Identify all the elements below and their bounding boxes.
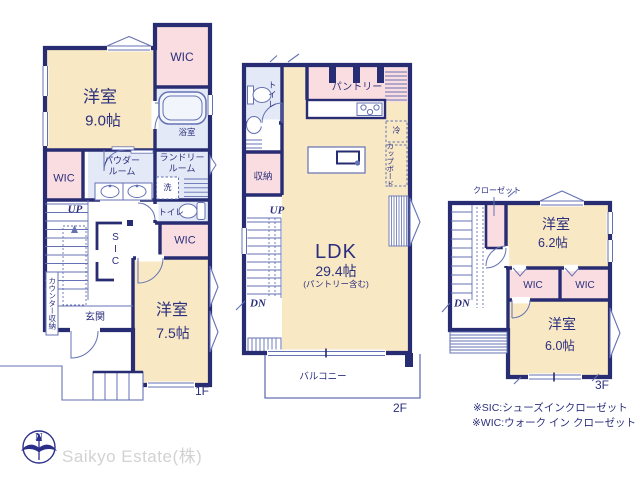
label-1f-washer: 洗 bbox=[164, 184, 172, 192]
bay-window bbox=[210, 311, 218, 352]
label-1f-room-south: 洋室 bbox=[156, 303, 188, 319]
bay-window bbox=[210, 266, 218, 307]
label-2f-toilet: トイレ bbox=[268, 81, 277, 110]
company-logo-text: Saikyo Estate(株) bbox=[62, 448, 202, 465]
room-3f-closet bbox=[486, 205, 506, 248]
bathtub bbox=[159, 92, 206, 124]
label-1f-floor: 1F bbox=[195, 385, 209, 397]
kitchen-island bbox=[308, 147, 365, 173]
label-1f-up: UP bbox=[68, 205, 83, 216]
label-3f-room-se-size: 6.0帖 bbox=[545, 340, 575, 353]
label-2f-ldk: LDK bbox=[315, 242, 357, 262]
label-1f-room-west-size: 9.0帖 bbox=[85, 114, 121, 129]
note-wic: ※WIC:ウォーク イン クローゼット bbox=[472, 418, 636, 429]
label-3f-room-se: 洋室 bbox=[548, 317, 576, 331]
room-1f-south-75 bbox=[133, 258, 210, 385]
label-1f-laundry-2: ルーム bbox=[169, 165, 196, 174]
label-1f-wic-north: WIC bbox=[170, 51, 193, 63]
label-2f-up: UP bbox=[270, 206, 285, 217]
label-1f-wic-center: WIC bbox=[174, 236, 195, 247]
kitchen-counter bbox=[307, 100, 385, 118]
door-gap bbox=[261, 120, 279, 127]
label-2f-fridge: 冷 bbox=[393, 127, 401, 135]
label-3f-wic-west: WIC bbox=[523, 281, 542, 291]
floor-2f bbox=[236, 54, 420, 398]
label-3f-wic-east: WIC bbox=[575, 281, 594, 291]
label-1f-wic-west: WIC bbox=[53, 174, 74, 185]
note-sic: ※SIC:シューズインクローゼット bbox=[473, 403, 628, 414]
bay-window bbox=[410, 198, 420, 246]
label-1f-bath: 浴室 bbox=[178, 128, 195, 137]
porch-1f bbox=[0, 366, 143, 400]
label-1f-entrance: 玄関 bbox=[85, 313, 105, 323]
floor-plan-page: N 洋室 9.0帖 WIC 浴室 パウダー ルーム ランドリー ルーム 洗 WI… bbox=[0, 0, 640, 480]
label-1f-counter-storage: カウンター収納 bbox=[48, 277, 56, 330]
label-2f-floor: 2F bbox=[393, 402, 407, 414]
label-3f-closet: クローゼット bbox=[473, 187, 521, 195]
label-3f-floor: 3F bbox=[595, 379, 609, 391]
floor-1f bbox=[0, 25, 218, 400]
bay-window bbox=[610, 308, 620, 358]
label-1f-laundry-1: ランドリー bbox=[159, 154, 204, 163]
label-1f-powder-2: ルーム bbox=[109, 168, 136, 177]
label-2f-ldk-note: (パントリー含む) bbox=[303, 280, 369, 289]
label-1f-sic: SIC bbox=[110, 232, 120, 268]
bay-window bbox=[540, 191, 584, 201]
label-2f-pantry: パントリー bbox=[332, 83, 383, 93]
label-1f-room-south-size: 7.5帖 bbox=[156, 326, 189, 340]
label-1f-room-west: 洋室 bbox=[83, 89, 117, 106]
label-3f-room-ne-size: 6.2帖 bbox=[538, 237, 568, 250]
bay-window bbox=[107, 37, 151, 47]
wall-pillar bbox=[127, 220, 133, 226]
label-1f-powder-1: パウダー bbox=[104, 157, 140, 166]
roof-hatch-3f bbox=[450, 332, 507, 353]
label-3f-dn: DN bbox=[454, 299, 470, 310]
label-2f-storage: 収納 bbox=[253, 172, 272, 182]
label-2f-balcony: バルコニー bbox=[299, 372, 346, 382]
compass: N bbox=[21, 431, 57, 463]
label-2f-ldk-size: 29.4帖 bbox=[315, 264, 356, 278]
label-1f-toilet: トイレ bbox=[158, 208, 184, 217]
powder-sinks bbox=[95, 183, 152, 200]
sliding-door bbox=[131, 150, 153, 153]
sliding-door bbox=[112, 147, 134, 150]
label-2f-dn: DN bbox=[250, 299, 266, 310]
stairs-3f bbox=[451, 205, 483, 308]
label-2f-cupboard: カップボード bbox=[386, 143, 394, 188]
label-3f-room-ne: 洋室 bbox=[542, 217, 570, 231]
